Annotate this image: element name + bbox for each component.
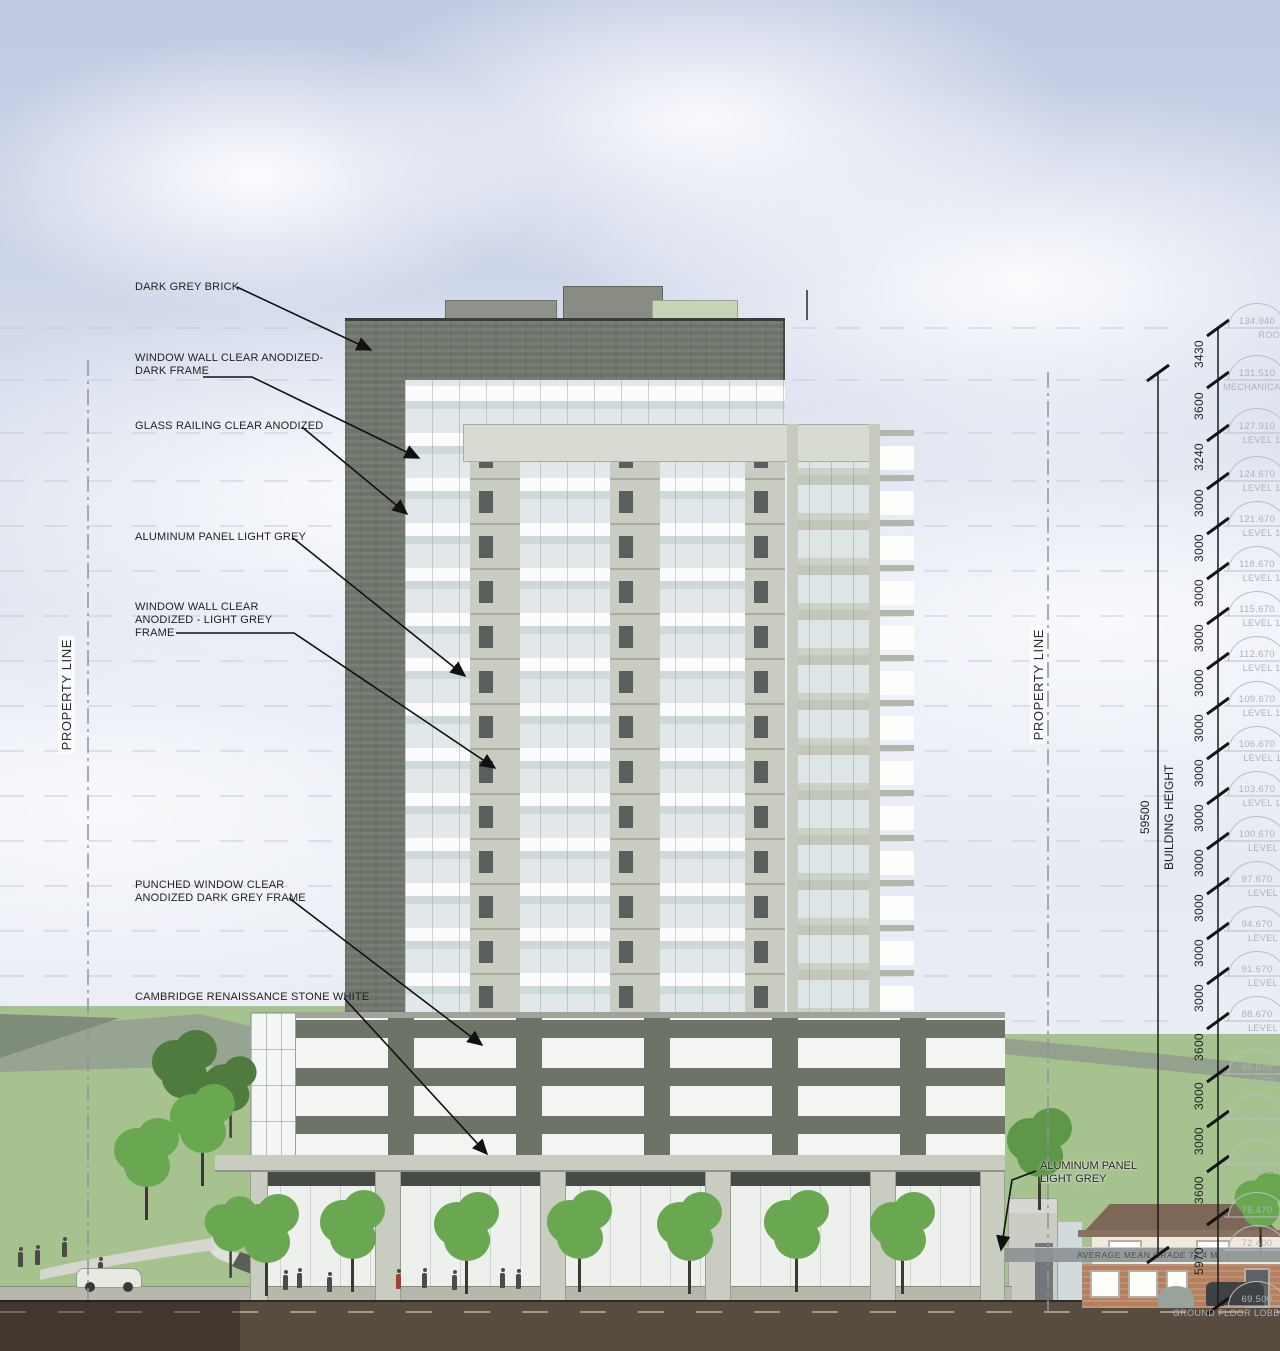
level-bubble-5: 88.670LEVEL 5 <box>1228 996 1280 1021</box>
level-bubble-10: 103.670LEVEL 10 <box>1228 771 1280 796</box>
callout-glass-railing: GLASS RAILING CLEAR ANODIZED <box>135 420 323 433</box>
level-bubble-roof: 134.940ROOF <box>1228 303 1280 328</box>
callout-aluminum-panel-right: ALUMINUM PANEL LIGHT GREY <box>1040 1160 1137 1186</box>
level-bubble-11: 106.670LEVEL 11 <box>1228 726 1280 751</box>
level-bubble-7: 94.670LEVEL 7 <box>1228 906 1280 931</box>
callout-window-wall-dark-frame: WINDOW WALL CLEAR ANODIZED- DARK FRAME <box>135 352 324 378</box>
callout-window-wall-light-grey-frame: WINDOW WALL CLEAR ANODIZED - LIGHT GREY … <box>135 601 272 640</box>
level-bubble-4: 85.070LEVEL 4 <box>1228 1049 1280 1074</box>
level-bubble-6: 91.670LEVEL 6 <box>1228 951 1280 976</box>
building-height-value: 59500 <box>1138 782 1152 852</box>
level-bubble-12: 109.670LEVEL 12 <box>1228 681 1280 706</box>
property-line-label-left: PROPERTY LINE <box>58 636 75 753</box>
callout-cambridge-stone: CAMBRIDGE RENAISSANCE STONE WHITE <box>135 991 369 1004</box>
level-bubble-mechanical: 131.510MECHANICAL <box>1228 355 1280 380</box>
property-line-label-right: PROPERTY LINE <box>1030 626 1047 743</box>
level-bubble-15: 118.670LEVEL 15 <box>1228 546 1280 571</box>
level-bubble-18: 127.910LEVEL 18 <box>1228 408 1280 433</box>
annotation-linework <box>0 0 1280 1351</box>
callout-punched-window: PUNCHED WINDOW CLEAR ANODIZED DARK GREY … <box>135 879 306 905</box>
level-bubble-2: 79.070LEVEL 2 <box>1228 1139 1280 1164</box>
dim-label: 5970 <box>1192 1231 1206 1291</box>
level-bubble-grade: 72.400 <box>1228 1225 1280 1250</box>
level-bubble-13: 112.670LEVEL 13 <box>1228 636 1280 661</box>
callout-aluminum-panel: ALUMINUM PANEL LIGHT GREY <box>135 531 306 544</box>
level-bubble-16: 121.670LEVEL 16 <box>1228 501 1280 526</box>
level-bubble-3: 82.070LEVEL 3 <box>1228 1094 1280 1119</box>
level-bubble-ground-floor: 69.500GROUND FLOOR LOBBY <box>1228 1281 1280 1306</box>
building-height-label: BUILDING HEIGHT <box>1162 745 1176 890</box>
level-bubble-14: 115.670LEVEL 14 <box>1228 591 1280 616</box>
elevation-drawing: AVERAGE MEAN GRADE 72.4 M <box>0 0 1280 1351</box>
level-bubble-9: 100.670LEVEL 9 <box>1228 816 1280 841</box>
level-bubble-17: 124.670LEVEL 17 <box>1228 456 1280 481</box>
callout-dark-grey-brick: DARK GREY BRICK <box>135 281 239 294</box>
level-bubble-8: 97.670LEVEL 8 <box>1228 861 1280 886</box>
level-bubble-75470: 75.470 <box>1228 1192 1280 1217</box>
